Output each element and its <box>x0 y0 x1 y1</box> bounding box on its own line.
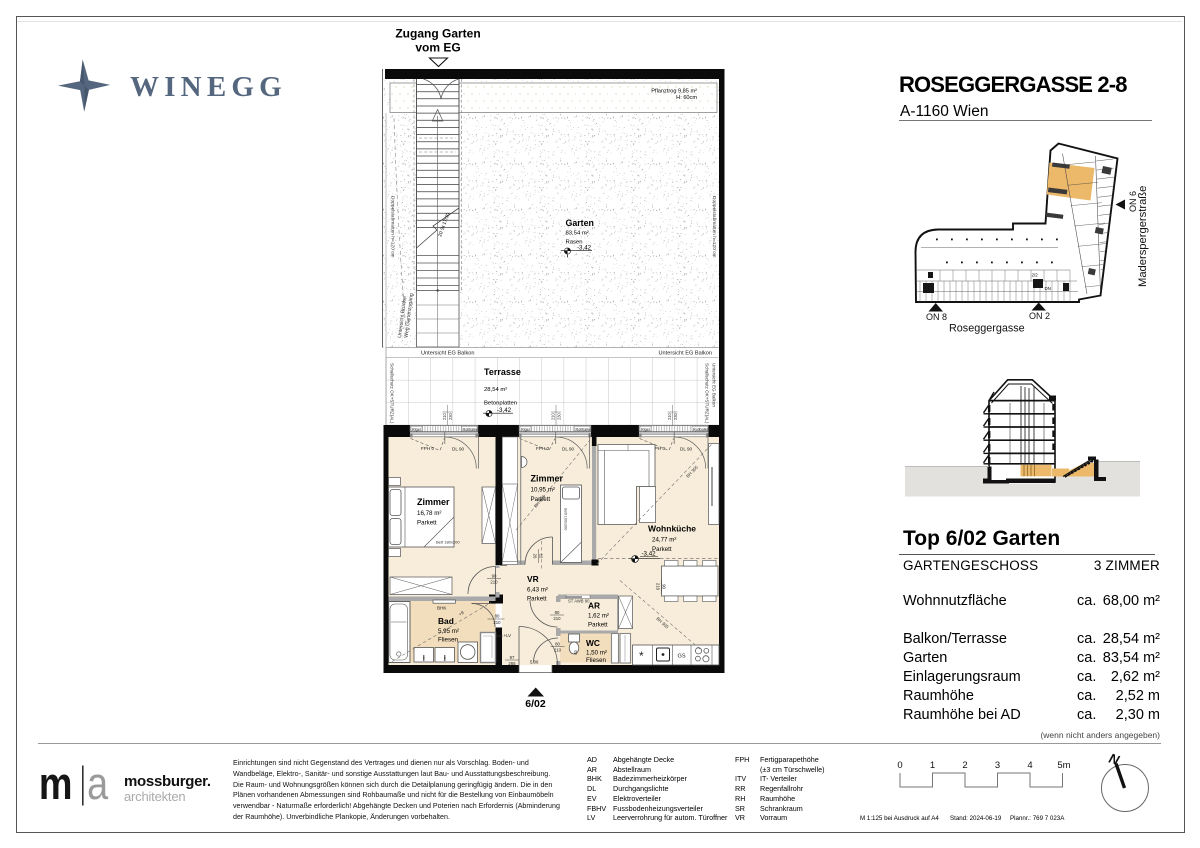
svg-text:Parkett: Parkett <box>527 596 547 603</box>
svg-text:Roseggergasse: Roseggergasse <box>949 323 1025 335</box>
svg-text:Fliesen: Fliesen <box>438 637 459 644</box>
svg-text:AR: AR <box>588 601 600 611</box>
svg-text:28,54 m²: 28,54 m² <box>484 387 507 393</box>
svg-text:GS: GS <box>678 654 686 660</box>
svg-text:Zimmer: Zimmer <box>417 497 450 507</box>
svg-text:Wohnküche: Wohnküche <box>648 524 696 534</box>
svg-text:80: 80 <box>495 613 500 618</box>
svg-text:FPH 0: FPH 0 <box>536 446 549 451</box>
svg-text:1,62 m²: 1,62 m² <box>588 613 609 620</box>
svg-text:-3,42: -3,42 <box>497 407 512 414</box>
svg-text:5,06: 5,06 <box>530 660 539 665</box>
svg-text:210: 210 <box>656 583 661 591</box>
svg-text:Rollbalken: Rollbalken <box>693 427 711 431</box>
svg-text:-3,42: -3,42 <box>642 551 657 558</box>
svg-text:Parkett: Parkett <box>417 520 437 527</box>
svg-text:Rollbalken: Rollbalken <box>576 427 594 431</box>
svg-text:Maderspergerstraße: Maderspergerstraße <box>1137 186 1149 287</box>
svg-text:Schallschutz OK+STURZ(AL): Schallschutz OK+STURZ(AL) <box>390 363 395 424</box>
svg-text:5m: 5m <box>1057 760 1070 771</box>
svg-text:Terrasse: Terrasse <box>484 367 521 377</box>
svg-text:*: * <box>639 649 644 663</box>
svg-text:Zimmer: Zimmer <box>531 474 564 484</box>
svg-text:Parkett: Parkett <box>531 496 551 503</box>
svg-text:ON 8: ON 8 <box>926 312 947 322</box>
svg-text:Zugang Garten: Zugang Garten <box>395 27 480 41</box>
svg-text:0: 0 <box>897 760 902 771</box>
svg-text:Doppelstabmatten h=120 cm: Doppelstabmatten h=120 cm <box>711 196 717 257</box>
svg-text:Parkett: Parkett <box>588 622 608 629</box>
svg-text:ON 2: ON 2 <box>1029 311 1050 321</box>
svg-text:4: 4 <box>1027 760 1032 771</box>
svg-text:Bad: Bad <box>438 616 454 626</box>
svg-text:Untersicht EG Balkon: Untersicht EG Balkon <box>712 363 717 407</box>
svg-text:Untersicht EG Balkon: Untersicht EG Balkon <box>421 351 474 357</box>
svg-text:210: 210 <box>442 412 447 420</box>
svg-text:DL 90: DL 90 <box>562 447 575 452</box>
svg-text:210: 210 <box>667 412 672 420</box>
svg-text:210: 210 <box>554 648 562 653</box>
svg-text:WINEGG: WINEGG <box>130 71 287 103</box>
svg-text:Schallschutz OK+STURZ(AL): Schallschutz OK+STURZ(AL) <box>705 363 710 424</box>
svg-text:Rigel: Rigel <box>412 427 421 431</box>
svg-text:6/02: 6/02 <box>525 698 546 710</box>
svg-text:DL 90: DL 90 <box>680 447 693 452</box>
svg-text:210: 210 <box>490 580 498 585</box>
svg-text:Bett 180x200: Bett 180x200 <box>436 540 460 545</box>
svg-text:-3,42: -3,42 <box>577 245 592 252</box>
svg-text:DN: DN <box>1045 286 1052 291</box>
svg-text:+LV: +LV <box>504 633 512 638</box>
svg-text:210: 210 <box>553 616 561 621</box>
svg-text:Betonplatten: Betonplatten <box>484 401 517 407</box>
svg-text:H: 60cm: H: 60cm <box>676 95 697 101</box>
svg-text:80: 80 <box>555 641 560 646</box>
svg-text:1,50 m²: 1,50 m² <box>586 650 607 657</box>
svg-text:5,95 m²: 5,95 m² <box>438 628 459 635</box>
svg-text:Fliesen: Fliesen <box>586 657 607 664</box>
svg-text:90: 90 <box>492 573 497 578</box>
svg-text:4b: 4b <box>573 650 578 655</box>
svg-text:Doppelstabmatten h=120 cm: Doppelstabmatten h=120 cm <box>390 196 396 257</box>
svg-text:12: 12 <box>539 554 544 559</box>
svg-text:210: 210 <box>493 620 501 625</box>
svg-text:m: m <box>39 760 73 809</box>
svg-text:6,43 m²: 6,43 m² <box>527 587 548 594</box>
svg-text:80: 80 <box>555 610 560 615</box>
svg-text:26: 26 <box>533 554 538 559</box>
svg-text:83,54 m²: 83,54 m² <box>566 231 589 237</box>
svg-text:Untersicht EG Balkon: Untersicht EG Balkon <box>659 351 712 357</box>
svg-text:BHK: BHK <box>437 606 447 611</box>
svg-text:265: 265 <box>508 661 516 666</box>
svg-text:ST AWB 80: ST AWB 80 <box>568 599 590 604</box>
svg-text:16,78 m²: 16,78 m² <box>417 510 441 517</box>
svg-text:210: 210 <box>551 412 556 420</box>
svg-text:Rigel: Rigel <box>521 427 530 431</box>
svg-text:2/2: 2/2 <box>1032 273 1039 278</box>
svg-text:VR: VR <box>527 574 539 584</box>
svg-text:FPH 0: FPH 0 <box>421 446 434 451</box>
svg-text:Rollbalken: Rollbalken <box>463 427 481 431</box>
svg-text:Pflanztrog 9,85 m²: Pflanztrog 9,85 m² <box>651 89 697 95</box>
svg-text:10,95 m²: 10,95 m² <box>531 487 555 494</box>
svg-text:97: 97 <box>510 655 515 660</box>
svg-text:24,77 m²: 24,77 m² <box>652 537 676 544</box>
svg-text:1: 1 <box>930 760 935 771</box>
svg-text:90: 90 <box>662 584 667 589</box>
svg-text:230: 230 <box>557 412 562 420</box>
svg-text:230: 230 <box>673 412 678 420</box>
svg-text:vom EG: vom EG <box>415 41 460 55</box>
svg-text:Rigel: Rigel <box>641 427 650 431</box>
svg-text:WC: WC <box>586 638 600 648</box>
svg-text:Garten: Garten <box>566 218 594 228</box>
svg-text:Bett 100x200: Bett 100x200 <box>564 508 568 530</box>
svg-text:2: 2 <box>962 760 967 771</box>
svg-text:DL 90: DL 90 <box>452 447 465 452</box>
svg-text:3: 3 <box>995 760 1000 771</box>
svg-text:230: 230 <box>448 412 453 420</box>
svg-text:a: a <box>87 760 109 809</box>
